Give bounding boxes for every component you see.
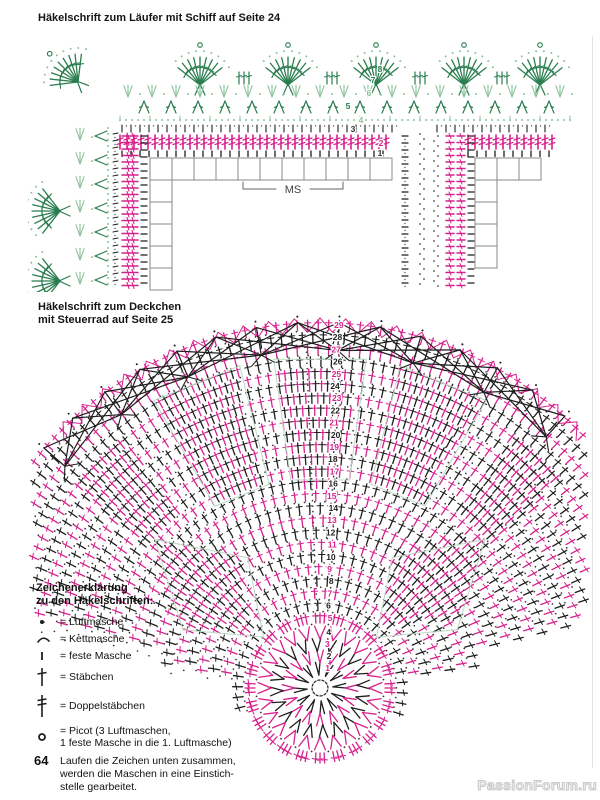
- svg-text:2: 2: [379, 138, 384, 148]
- stitch-legend: Zeichenerklärung zu den Häkelschriften: …: [36, 582, 256, 794]
- page-number: 64: [34, 753, 48, 768]
- svg-text:5: 5: [346, 101, 351, 111]
- watermark: PassionForum.ru: [477, 777, 597, 793]
- slip-stitch-icon: [36, 634, 60, 644]
- svg-text:7: 7: [371, 75, 376, 85]
- svg-text:3: 3: [351, 124, 356, 134]
- svg-text:8: 8: [378, 64, 383, 74]
- legend-heading: Zeichenerklärung zu den Häkelschriften:: [36, 582, 256, 608]
- legend-item-chain: = Luftmasche: [36, 616, 256, 628]
- legend-note: Laufen die Zeichen unten zusammen, werde…: [36, 755, 256, 794]
- legend-item-slip: = Kettmasche: [36, 633, 256, 645]
- runner-crochet-chart: MS87654321: [28, 36, 598, 292]
- page-edge-shadow: [592, 36, 593, 768]
- legend-item-treble: = Doppelstäbchen: [36, 694, 256, 718]
- svg-text:4: 4: [359, 115, 364, 125]
- treble-crochet-icon: [36, 694, 60, 718]
- runner-chart-title: Häkelschrift zum Läufer mit Schiff auf S…: [38, 12, 280, 25]
- double-crochet-icon: [36, 667, 60, 687]
- single-crochet-icon: [36, 650, 60, 662]
- legend-item-double: = Stäbchen: [36, 667, 256, 687]
- chain-stitch-icon: [36, 617, 60, 627]
- legend-item-single: = feste Masche: [36, 650, 256, 662]
- svg-text:MS: MS: [285, 184, 302, 196]
- svg-text:6: 6: [367, 88, 372, 98]
- magazine-page: Häkelschrift zum Läufer mit Schiff auf S…: [0, 0, 600, 800]
- svg-text:1: 1: [378, 148, 383, 158]
- legend-item-picot: = Picot (3 Luftmaschen, 1 feste Masche i…: [36, 725, 256, 749]
- picot-icon: [36, 731, 60, 743]
